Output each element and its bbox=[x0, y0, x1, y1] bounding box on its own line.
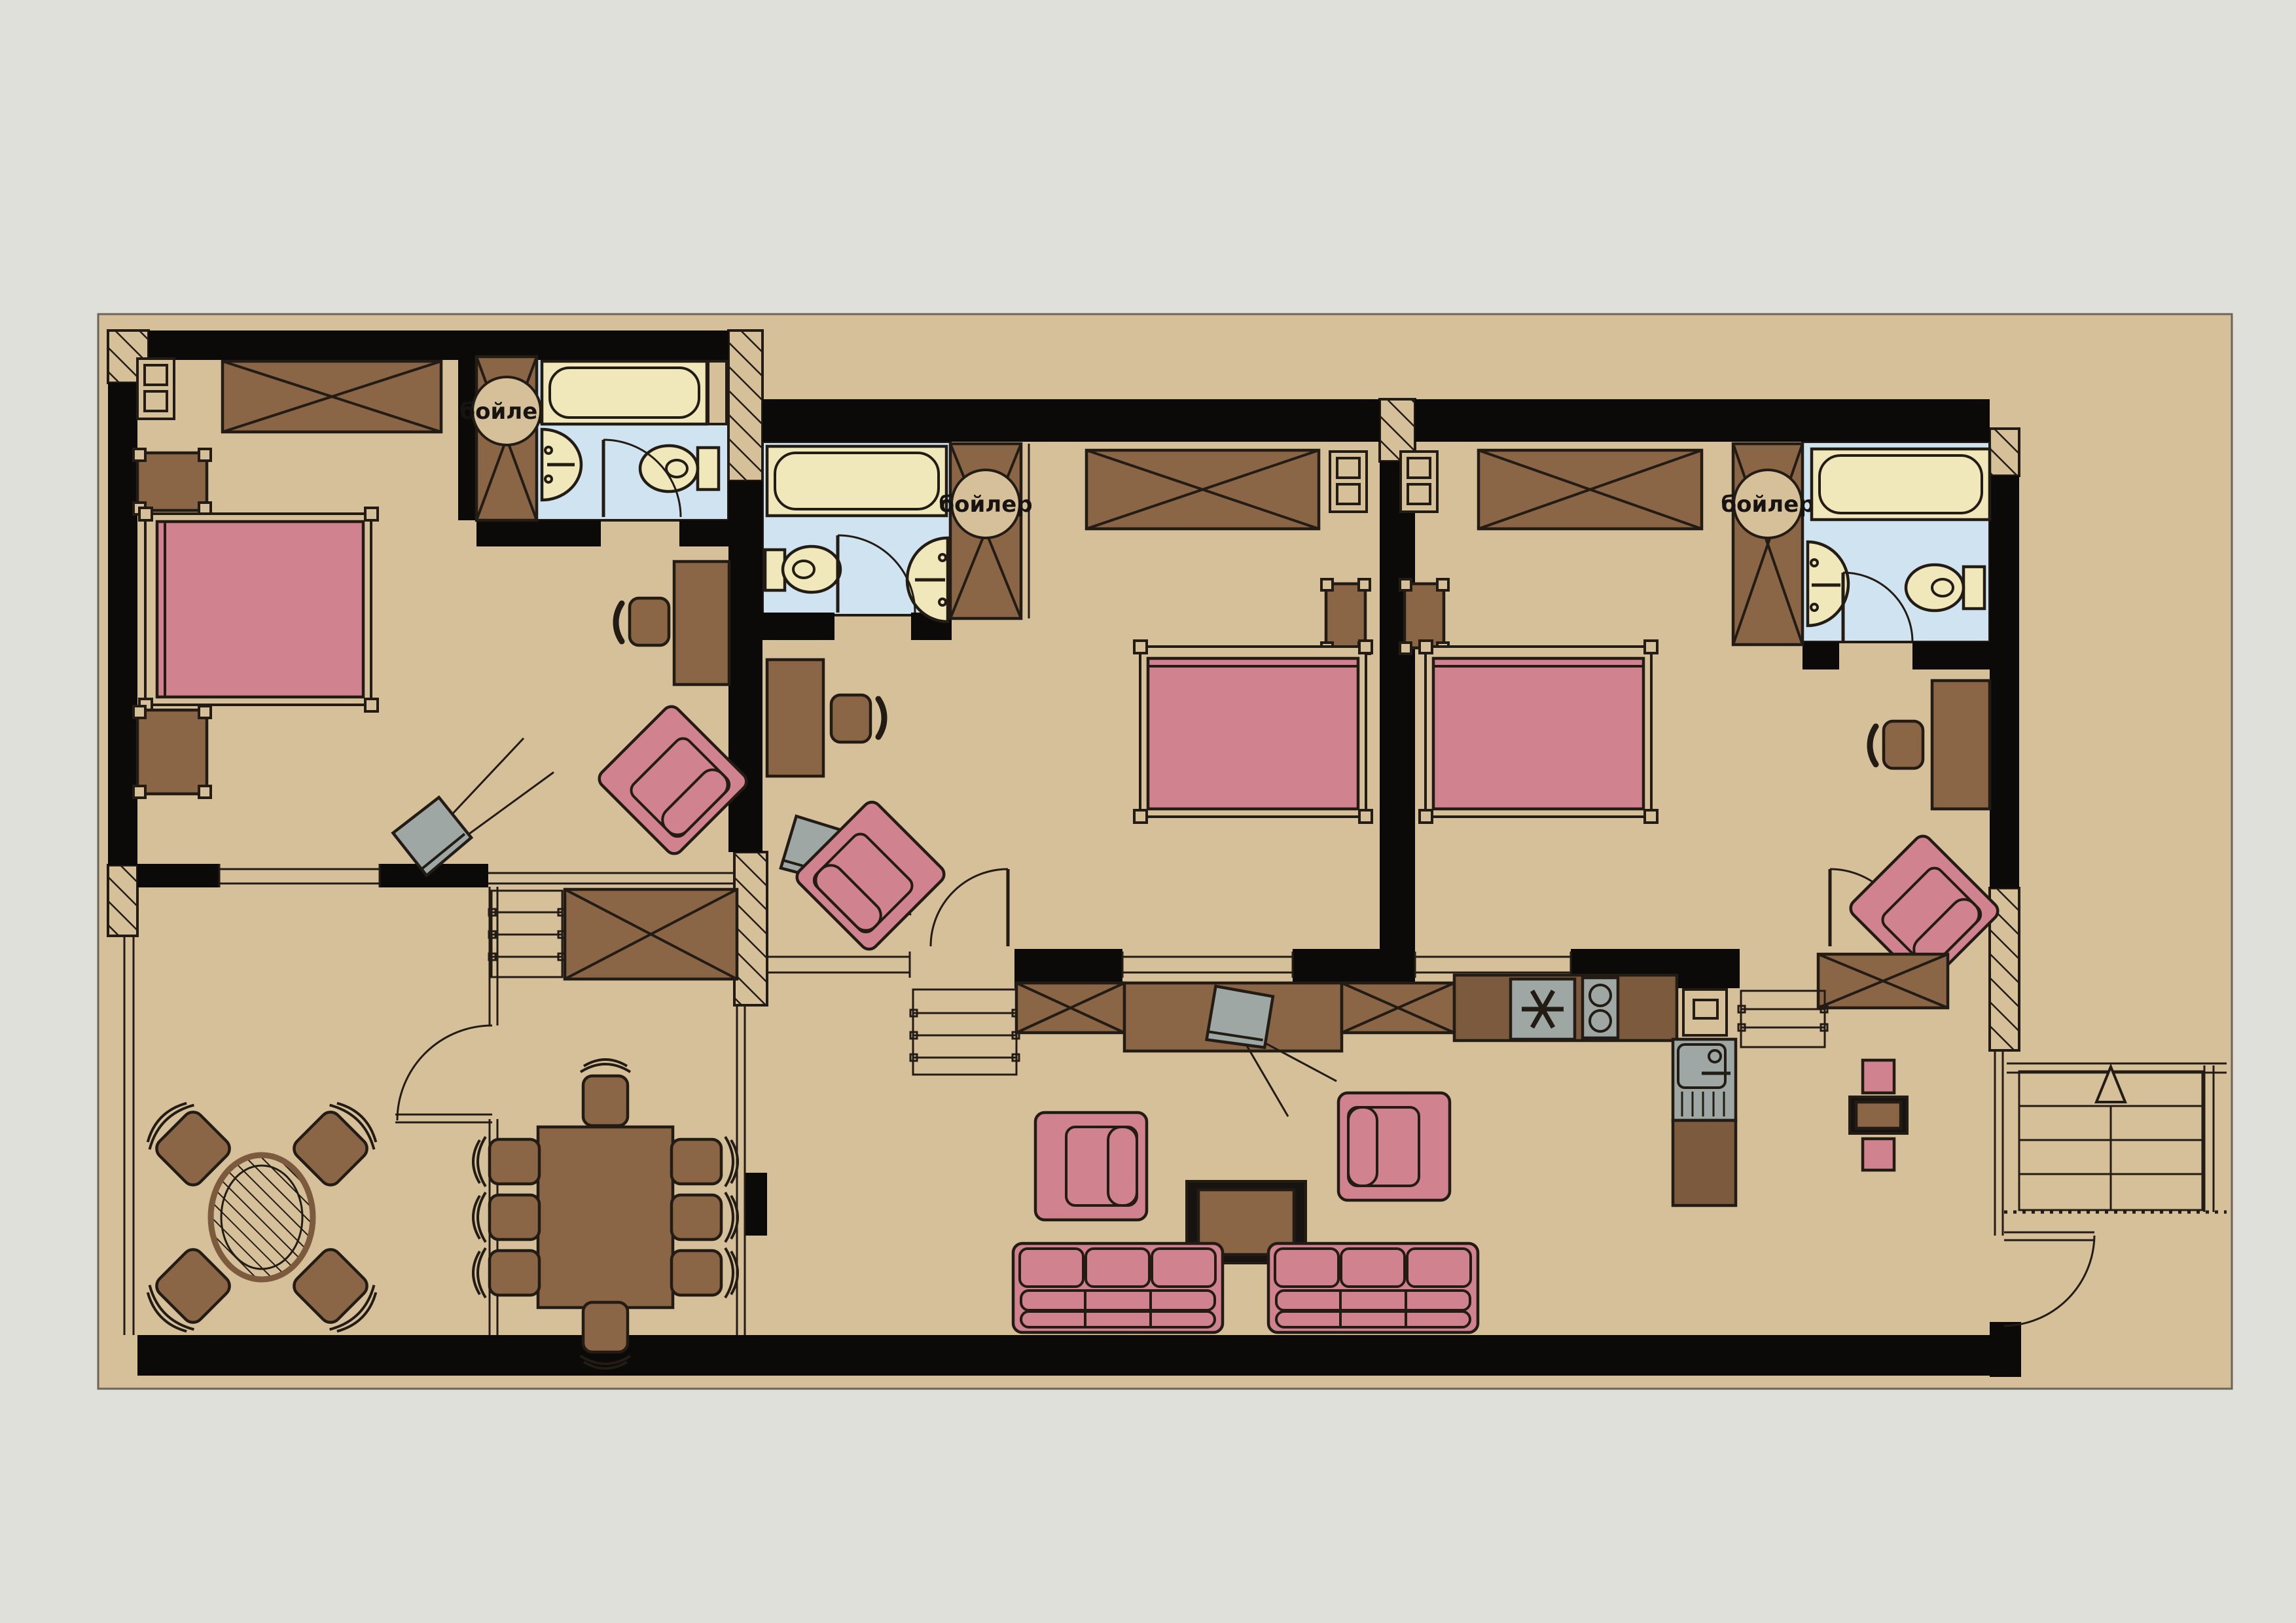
dresser bbox=[1330, 452, 1367, 512]
round-table bbox=[211, 1155, 313, 1279]
armchair bbox=[1035, 1113, 1147, 1220]
wardrobe bbox=[223, 361, 441, 432]
sideboard bbox=[1818, 954, 1948, 1008]
stool bbox=[1863, 1060, 1894, 1093]
counter-cabinet bbox=[1683, 990, 1727, 1035]
wall-bath1-south bbox=[679, 520, 728, 546]
toilet bbox=[1906, 565, 1984, 611]
kitchen-sink bbox=[1673, 1039, 1736, 1120]
wall-top-unit1 bbox=[149, 330, 728, 360]
wall-closet1 bbox=[458, 357, 476, 520]
boiler-closet: бойлер bbox=[939, 444, 1032, 618]
fridge bbox=[1511, 979, 1575, 1039]
wall-pier-partition bbox=[745, 1173, 767, 1236]
bathtub bbox=[1812, 449, 1990, 520]
boiler-closet: бойлер bbox=[1721, 444, 1814, 645]
kitchen-counter bbox=[1673, 1120, 1736, 1205]
floor-plan-drawing: бойлер bbox=[0, 0, 2296, 1623]
desk bbox=[674, 562, 729, 685]
desk bbox=[1932, 681, 1990, 809]
stove bbox=[1583, 978, 1618, 1038]
side-table bbox=[1850, 1097, 1907, 1133]
bath-shelf bbox=[708, 361, 726, 424]
bathtub bbox=[767, 446, 946, 516]
boiler-label: бойлер bbox=[459, 399, 553, 425]
wall-entry-stub bbox=[1990, 1322, 2021, 1377]
double-bed bbox=[1420, 641, 1657, 823]
toilet bbox=[765, 546, 840, 592]
sofa bbox=[1268, 1243, 1478, 1332]
wall-bath3-south bbox=[1803, 642, 1839, 669]
long-table bbox=[538, 1127, 673, 1308]
pier bbox=[108, 865, 137, 936]
wardrobe bbox=[1086, 450, 1319, 529]
sideboard bbox=[1016, 983, 1124, 1033]
wall-divider-2 bbox=[1380, 461, 1415, 950]
wardrobe bbox=[1479, 450, 1702, 529]
wall-bath2-south bbox=[762, 613, 834, 640]
desk bbox=[767, 660, 823, 776]
armchair bbox=[1338, 1093, 1450, 1200]
wall-bath1-south bbox=[476, 520, 601, 546]
double-bed bbox=[1134, 641, 1372, 823]
nightstand bbox=[134, 706, 211, 798]
wall-right bbox=[1990, 476, 2019, 888]
stool bbox=[1863, 1139, 1894, 1170]
boiler-label: бойлер bbox=[939, 491, 1032, 518]
dresser bbox=[1401, 452, 1437, 512]
wall-bottom bbox=[137, 1335, 2019, 1376]
sideboard bbox=[1342, 983, 1454, 1033]
nightstand bbox=[134, 449, 211, 514]
sideboard bbox=[565, 889, 737, 979]
sofa bbox=[1013, 1243, 1223, 1332]
wall-top-mid bbox=[762, 399, 1380, 442]
wall-unit1-south bbox=[137, 864, 219, 887]
pier bbox=[734, 852, 767, 1005]
wall-bath3-south bbox=[1912, 642, 1990, 669]
floor-plan-page: бойлер bbox=[0, 0, 2296, 1623]
toilet bbox=[640, 446, 719, 491]
double-bed bbox=[139, 508, 378, 711]
dresser bbox=[137, 359, 174, 419]
pier bbox=[1990, 429, 2019, 476]
boiler-label: бойлер bbox=[1721, 491, 1814, 518]
bathtub bbox=[542, 361, 707, 424]
pier bbox=[728, 330, 762, 481]
wall-top-right bbox=[1415, 399, 1990, 442]
